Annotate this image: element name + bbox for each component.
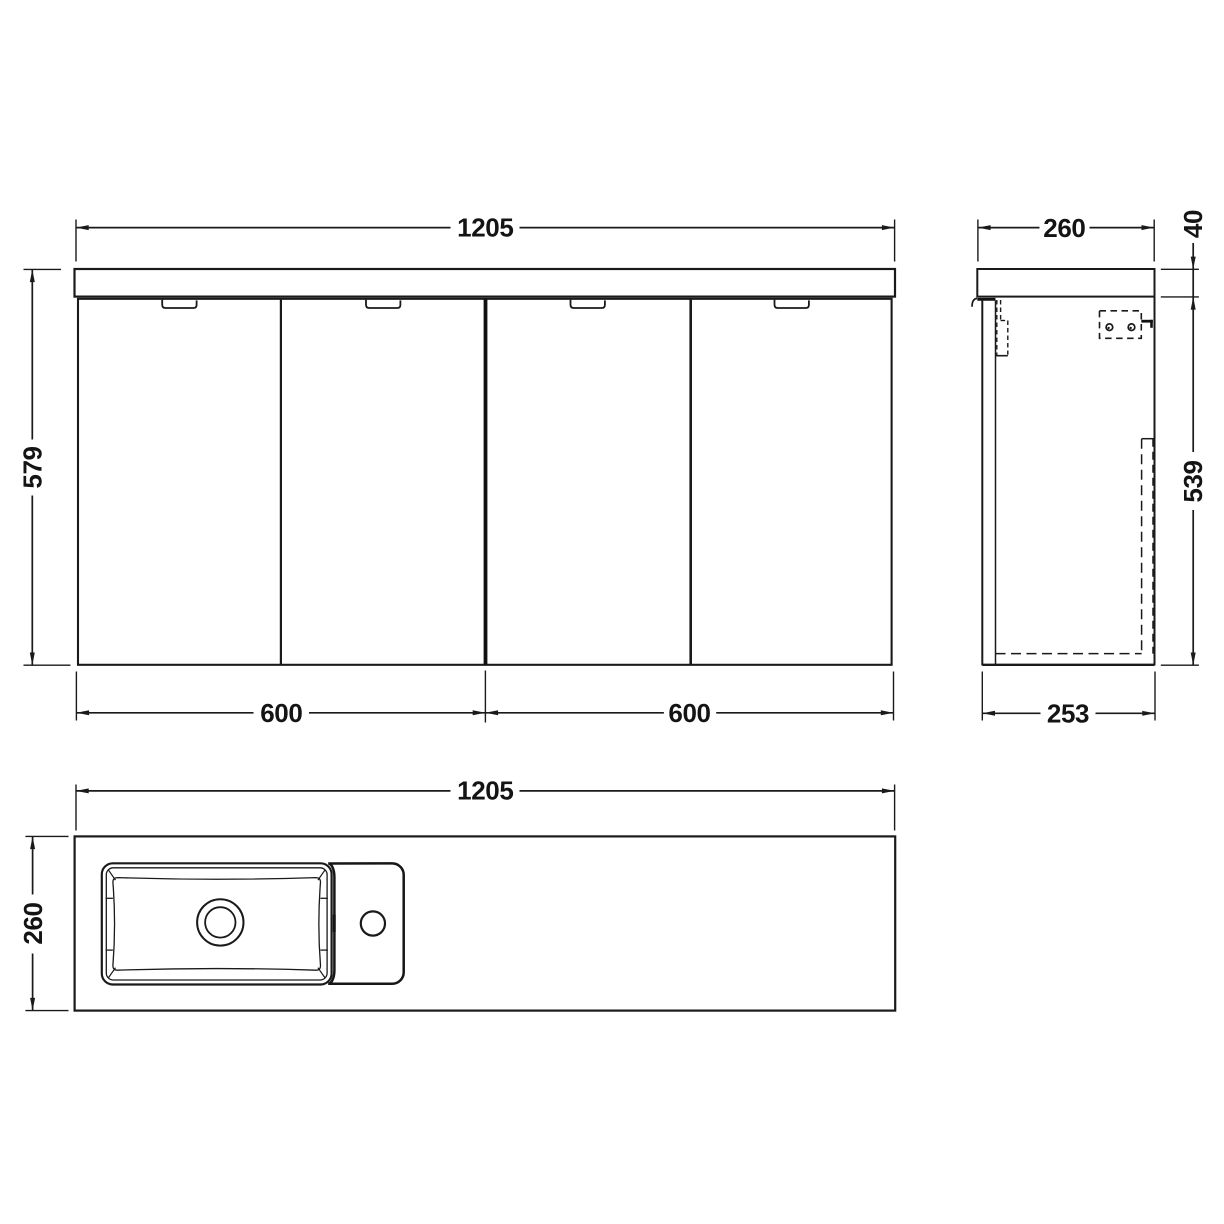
svg-text:600: 600 <box>260 698 302 728</box>
svg-text:600: 600 <box>668 698 710 728</box>
svg-text:1205: 1205 <box>457 776 513 806</box>
svg-text:40: 40 <box>1178 210 1208 238</box>
svg-text:579: 579 <box>18 446 48 488</box>
svg-text:539: 539 <box>1178 460 1208 502</box>
svg-text:253: 253 <box>1047 699 1089 729</box>
svg-text:1205: 1205 <box>457 213 513 243</box>
svg-text:260: 260 <box>1043 213 1085 243</box>
svg-text:260: 260 <box>18 902 48 944</box>
